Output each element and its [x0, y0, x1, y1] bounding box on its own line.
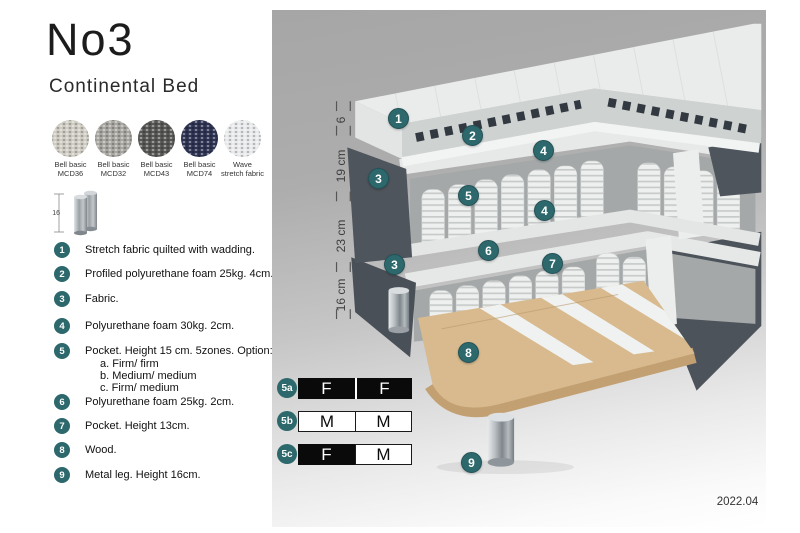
leg-height-label: 16: [52, 210, 60, 217]
callout-3-fabric-upper: 3: [368, 168, 389, 189]
fabric-swatch: Bell basic MCD43: [135, 120, 178, 178]
legend-item-7: 7 Pocket. Height 13cm.: [54, 418, 190, 434]
legend-number-badge: 2: [54, 266, 70, 282]
firmness-row-5c: F M: [298, 444, 412, 465]
callout-7-pocket-base: 7: [542, 253, 563, 274]
legend-number-badge: 6: [54, 394, 70, 410]
legend-number-badge: 9: [54, 467, 70, 483]
fabric-swatch: Bell basic MCD74: [178, 120, 221, 178]
legend-item-text: Pocket. Height 13cm.: [85, 420, 190, 432]
fabric-swatch-code: stretch fabric: [221, 170, 264, 179]
fabric-swatch: Wave stretch fabric: [221, 120, 264, 178]
legend-item-text: Metal leg. Height 16cm.: [85, 469, 201, 481]
legend-item-1: 1 Stretch fabric quilted with wadding.: [54, 242, 255, 258]
legend-option-c: c. Firm/ medium: [100, 382, 179, 394]
fabric-swatch: Bell basic MCD36: [49, 120, 92, 178]
legend-number-badge: 5: [54, 343, 70, 359]
callout-4-foam-lower: 4: [534, 200, 555, 221]
legend-option-a: a. Firm/ firm: [100, 358, 159, 370]
firmness-cell: M: [355, 411, 412, 432]
legend-item-5: 5 Pocket. Height 15 cm. 5zones. Option:: [54, 343, 273, 359]
legend-item-8: 8 Wood.: [54, 442, 117, 458]
legend-number-badge: 3: [54, 291, 70, 307]
version-date: 2022.04: [700, 496, 775, 508]
callout-2-profiled-foam: 2: [462, 125, 483, 146]
callout-1-stretch-fabric: 1: [388, 108, 409, 129]
fabric-swatch-code: MCD74: [187, 170, 212, 179]
leg-height-icon: 16: [50, 186, 112, 238]
fabric-swatch-circle: [181, 120, 218, 157]
firmness-row-5a: F F: [298, 378, 412, 399]
fabric-swatch-circle: [52, 120, 89, 157]
legend-option-b: b. Medium/ medium: [100, 370, 197, 382]
callout-3-fabric-lower: 3: [384, 254, 405, 275]
fabric-swatch-circle: [224, 120, 261, 157]
firmness-cell: F: [355, 378, 412, 399]
fabric-swatch-circle: [95, 120, 132, 157]
dimension-label-lower-box: 23 cm: [334, 206, 348, 266]
legend-item-3: 3 Fabric.: [54, 291, 119, 307]
fabric-swatch: Bell basic MCD32: [92, 120, 135, 178]
metal-leg-left: [389, 287, 410, 333]
legend-number-badge: 8: [54, 442, 70, 458]
leg-cylinders: [74, 191, 97, 235]
legend-item-text: Fabric.: [85, 293, 119, 305]
fabric-swatch-code: MCD36: [58, 170, 83, 179]
legend-number-badge: 4: [54, 318, 70, 334]
firmness-row-5b: M M: [298, 411, 412, 432]
firmness-row-badge-5c: 5c: [277, 444, 297, 464]
dimension-label-upper-box: 19 cm: [334, 136, 348, 196]
firmness-cell: F: [298, 378, 355, 399]
firmness-cell: F: [298, 444, 355, 465]
legend-item-text: Polyurethane foam 25kg. 2cm.: [85, 396, 234, 408]
legend-item-9: 9 Metal leg. Height 16cm.: [54, 467, 201, 483]
callout-5-pocket-springs: 5: [458, 185, 479, 206]
firmness-cell: M: [355, 444, 412, 465]
dimension-label-leg: 16 cm: [334, 265, 348, 325]
legend-number-badge: 7: [54, 418, 70, 434]
legend-number-badge: 1: [54, 242, 70, 258]
product-subtitle: Continental Bed: [49, 76, 199, 98]
metal-leg-front: [488, 413, 514, 467]
fabric-swatch-circle: [138, 120, 175, 157]
legend-item-text: Profiled polyurethane foam 25kg. 4cm.: [85, 268, 273, 280]
product-title: No3: [46, 14, 135, 66]
spec-sheet-page: No3 Continental Bed Bell basic MCD36 Bel…: [0, 0, 800, 533]
legend-item-6: 6 Polyurethane foam 25kg. 2cm.: [54, 394, 234, 410]
callout-6-foam-base: 6: [478, 240, 499, 261]
callout-4-foam-upper: 4: [533, 140, 554, 161]
fabric-swatches: Bell basic MCD36 Bell basic MCD32 Bell b…: [49, 120, 264, 178]
callout-8-wood: 8: [458, 342, 479, 363]
callout-9-metal-leg: 9: [461, 452, 482, 473]
firmness-row-badge-5b: 5b: [277, 411, 297, 431]
legend-item-4: 4 Polyurethane foam 30kg. 2cm.: [54, 318, 234, 334]
fabric-swatch-code: MCD43: [144, 170, 169, 179]
legend-item-text: Wood.: [85, 444, 117, 456]
legend-item-2: 2 Profiled polyurethane foam 25kg. 4cm.: [54, 266, 273, 282]
firmness-cell: M: [298, 411, 355, 432]
legend-item-text: Pocket. Height 15 cm. 5zones. Option:: [85, 345, 273, 357]
firmness-row-badge-5a: 5a: [277, 378, 297, 398]
fabric-swatch-code: MCD32: [101, 170, 126, 179]
legend-item-text: Stretch fabric quilted with wadding.: [85, 244, 255, 256]
legend-item-text: Polyurethane foam 30kg. 2cm.: [85, 320, 234, 332]
